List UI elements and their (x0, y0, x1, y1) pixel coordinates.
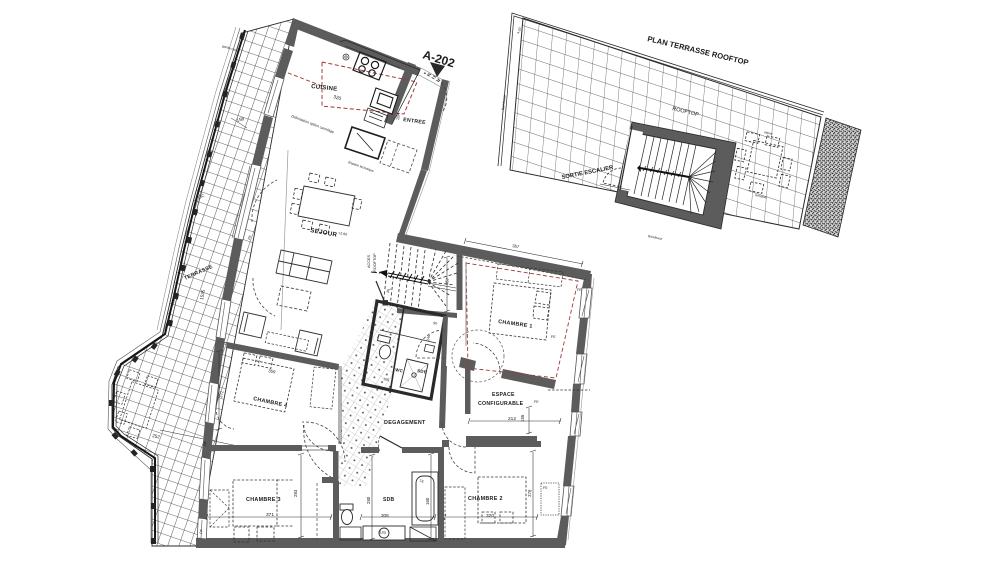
svg-text:320: 320 (332, 94, 342, 102)
svg-text:ACCES: ACCES (367, 254, 371, 268)
svg-text:CHAMBRE 3: CHAMBRE 3 (246, 497, 281, 503)
svg-text:284: 284 (395, 112, 401, 120)
svg-text:ENTREE: ENTREE (403, 117, 427, 126)
svg-text:+2.60: +2.60 (338, 231, 348, 237)
svg-text:CHAMBRE 2: CHAMBRE 2 (468, 496, 503, 502)
svg-text:283: 283 (293, 489, 298, 497)
svg-text:PL: PL (385, 286, 392, 293)
svg-text:FE: FE (543, 486, 548, 490)
svg-text:PLAN TERRASSE ROOFTOP: PLAN TERRASSE ROOFTOP (647, 34, 750, 67)
svg-text:246: 246 (426, 335, 431, 342)
svg-text:Délimitation option carrelage: Délimitation option carrelage (291, 114, 335, 134)
svg-text:WC: WC (395, 367, 404, 374)
svg-text:160: 160 (425, 497, 430, 505)
svg-text:DEGAGEMENT: DEGAGEMENT (384, 420, 426, 426)
svg-text:CUISINE: CUISINE (311, 84, 338, 93)
svg-text:359: 359 (268, 368, 277, 375)
svg-text:ROOFTOP: ROOFTOP (373, 253, 377, 272)
svg-text:Espace technique: Espace technique (348, 160, 375, 173)
svg-text:SDB: SDB (383, 497, 395, 503)
svg-text:320: 320 (486, 513, 494, 519)
svg-text:CONFIGURABLE: CONFIGURABLE (478, 401, 524, 407)
svg-text:ESPACE: ESPACE (492, 392, 515, 398)
svg-text:FE: FE (577, 288, 582, 292)
svg-text:378: 378 (527, 489, 532, 497)
svg-text:90: 90 (433, 321, 438, 326)
svg-text:SEJOUR: SEJOUR (310, 227, 338, 239)
svg-text:CHAMBRE 1: CHAMBRE 1 (498, 319, 533, 330)
svg-text:FE: FE (534, 400, 539, 404)
svg-text:357: 357 (512, 243, 520, 249)
svg-text:CHAMBRE 4: CHAMBRE 4 (253, 396, 288, 409)
svg-text:280: 280 (366, 496, 371, 504)
svg-text:Bandeaux: Bandeaux (648, 234, 663, 241)
svg-text:FE: FE (551, 335, 556, 339)
